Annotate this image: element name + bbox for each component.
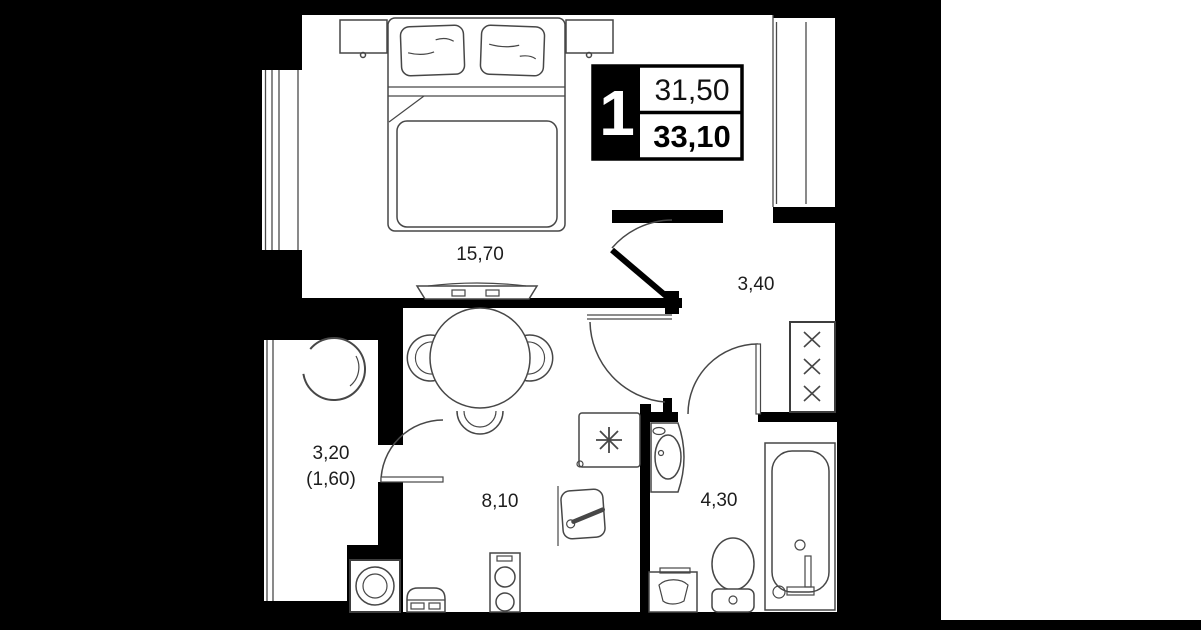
legend-total-area: 33,10 bbox=[653, 119, 731, 154]
hallway-furniture bbox=[790, 322, 835, 412]
room-label-bedroom: 15,70 bbox=[456, 244, 504, 265]
window-strip-left bbox=[262, 70, 302, 250]
hallway-upper-floor bbox=[612, 223, 835, 298]
small-appliance bbox=[407, 588, 445, 612]
balcony-door-leaf bbox=[381, 477, 443, 482]
pillow bbox=[480, 25, 545, 76]
bathroom-sink bbox=[651, 423, 684, 492]
toilet bbox=[712, 538, 754, 612]
washing-machine bbox=[350, 560, 400, 612]
legend-living-area: 31,50 bbox=[654, 74, 729, 107]
stove bbox=[490, 553, 520, 612]
room-label-bathroom: 4,30 bbox=[701, 490, 738, 511]
window-strip-right bbox=[773, 18, 835, 207]
nightstand bbox=[340, 20, 387, 53]
room-label-hallway: 3,40 bbox=[738, 274, 775, 295]
floor-plan: 1 31,50 33,10 15,70 3,40 8,10 4,30 3,20 … bbox=[0, 0, 1201, 630]
dining-table bbox=[430, 308, 530, 408]
legend-room-count: 1 bbox=[599, 77, 635, 149]
pillow bbox=[400, 25, 465, 76]
tv-console bbox=[417, 283, 537, 299]
wall-kitchen-bath-top bbox=[640, 404, 651, 422]
room-label-balcony: 3,20 bbox=[313, 443, 350, 464]
nightstand bbox=[566, 20, 613, 53]
room-label-kitchen: 8,10 bbox=[482, 491, 519, 512]
room-label-balcony-reduced: (1,60) bbox=[306, 469, 356, 490]
bathroom-doorway bbox=[678, 412, 758, 422]
entry-doorway bbox=[723, 210, 773, 223]
bathroom-door-leaf bbox=[756, 344, 761, 414]
floor-plan-page: 1 31,50 33,10 15,70 3,40 8,10 4,30 3,20 … bbox=[0, 0, 1201, 630]
laundry-cabinet bbox=[649, 568, 697, 612]
fridge bbox=[577, 413, 640, 467]
legend-box: 1 31,50 33,10 bbox=[593, 66, 742, 159]
bottom-band bbox=[941, 620, 1201, 630]
kitchen-sink bbox=[560, 489, 605, 540]
bathtub bbox=[765, 443, 835, 610]
